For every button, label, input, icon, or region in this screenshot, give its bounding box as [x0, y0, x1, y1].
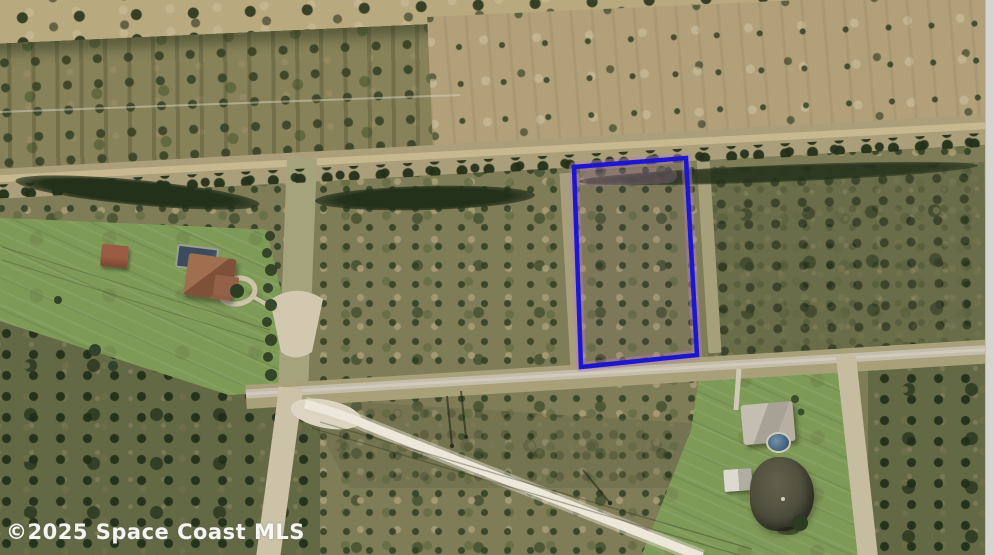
parcel-boundary: [574, 158, 697, 367]
aerial-photo: ©2025 Space Coast MLS: [0, 0, 994, 555]
mls-watermark: ©2025 Space Coast MLS: [6, 520, 305, 544]
driveway-island-tree: [230, 284, 244, 298]
driveway-tree-row: [262, 231, 277, 381]
utility-poles: [447, 391, 612, 505]
overlay-layer: [0, 0, 994, 555]
lawn-trees-left: [54, 296, 118, 371]
photo-edge-strip: [985, 0, 994, 555]
pasture-fence-lines: [2, 247, 270, 342]
lawn-trees-right: [777, 395, 808, 535]
power-line-shadows: [312, 422, 752, 555]
